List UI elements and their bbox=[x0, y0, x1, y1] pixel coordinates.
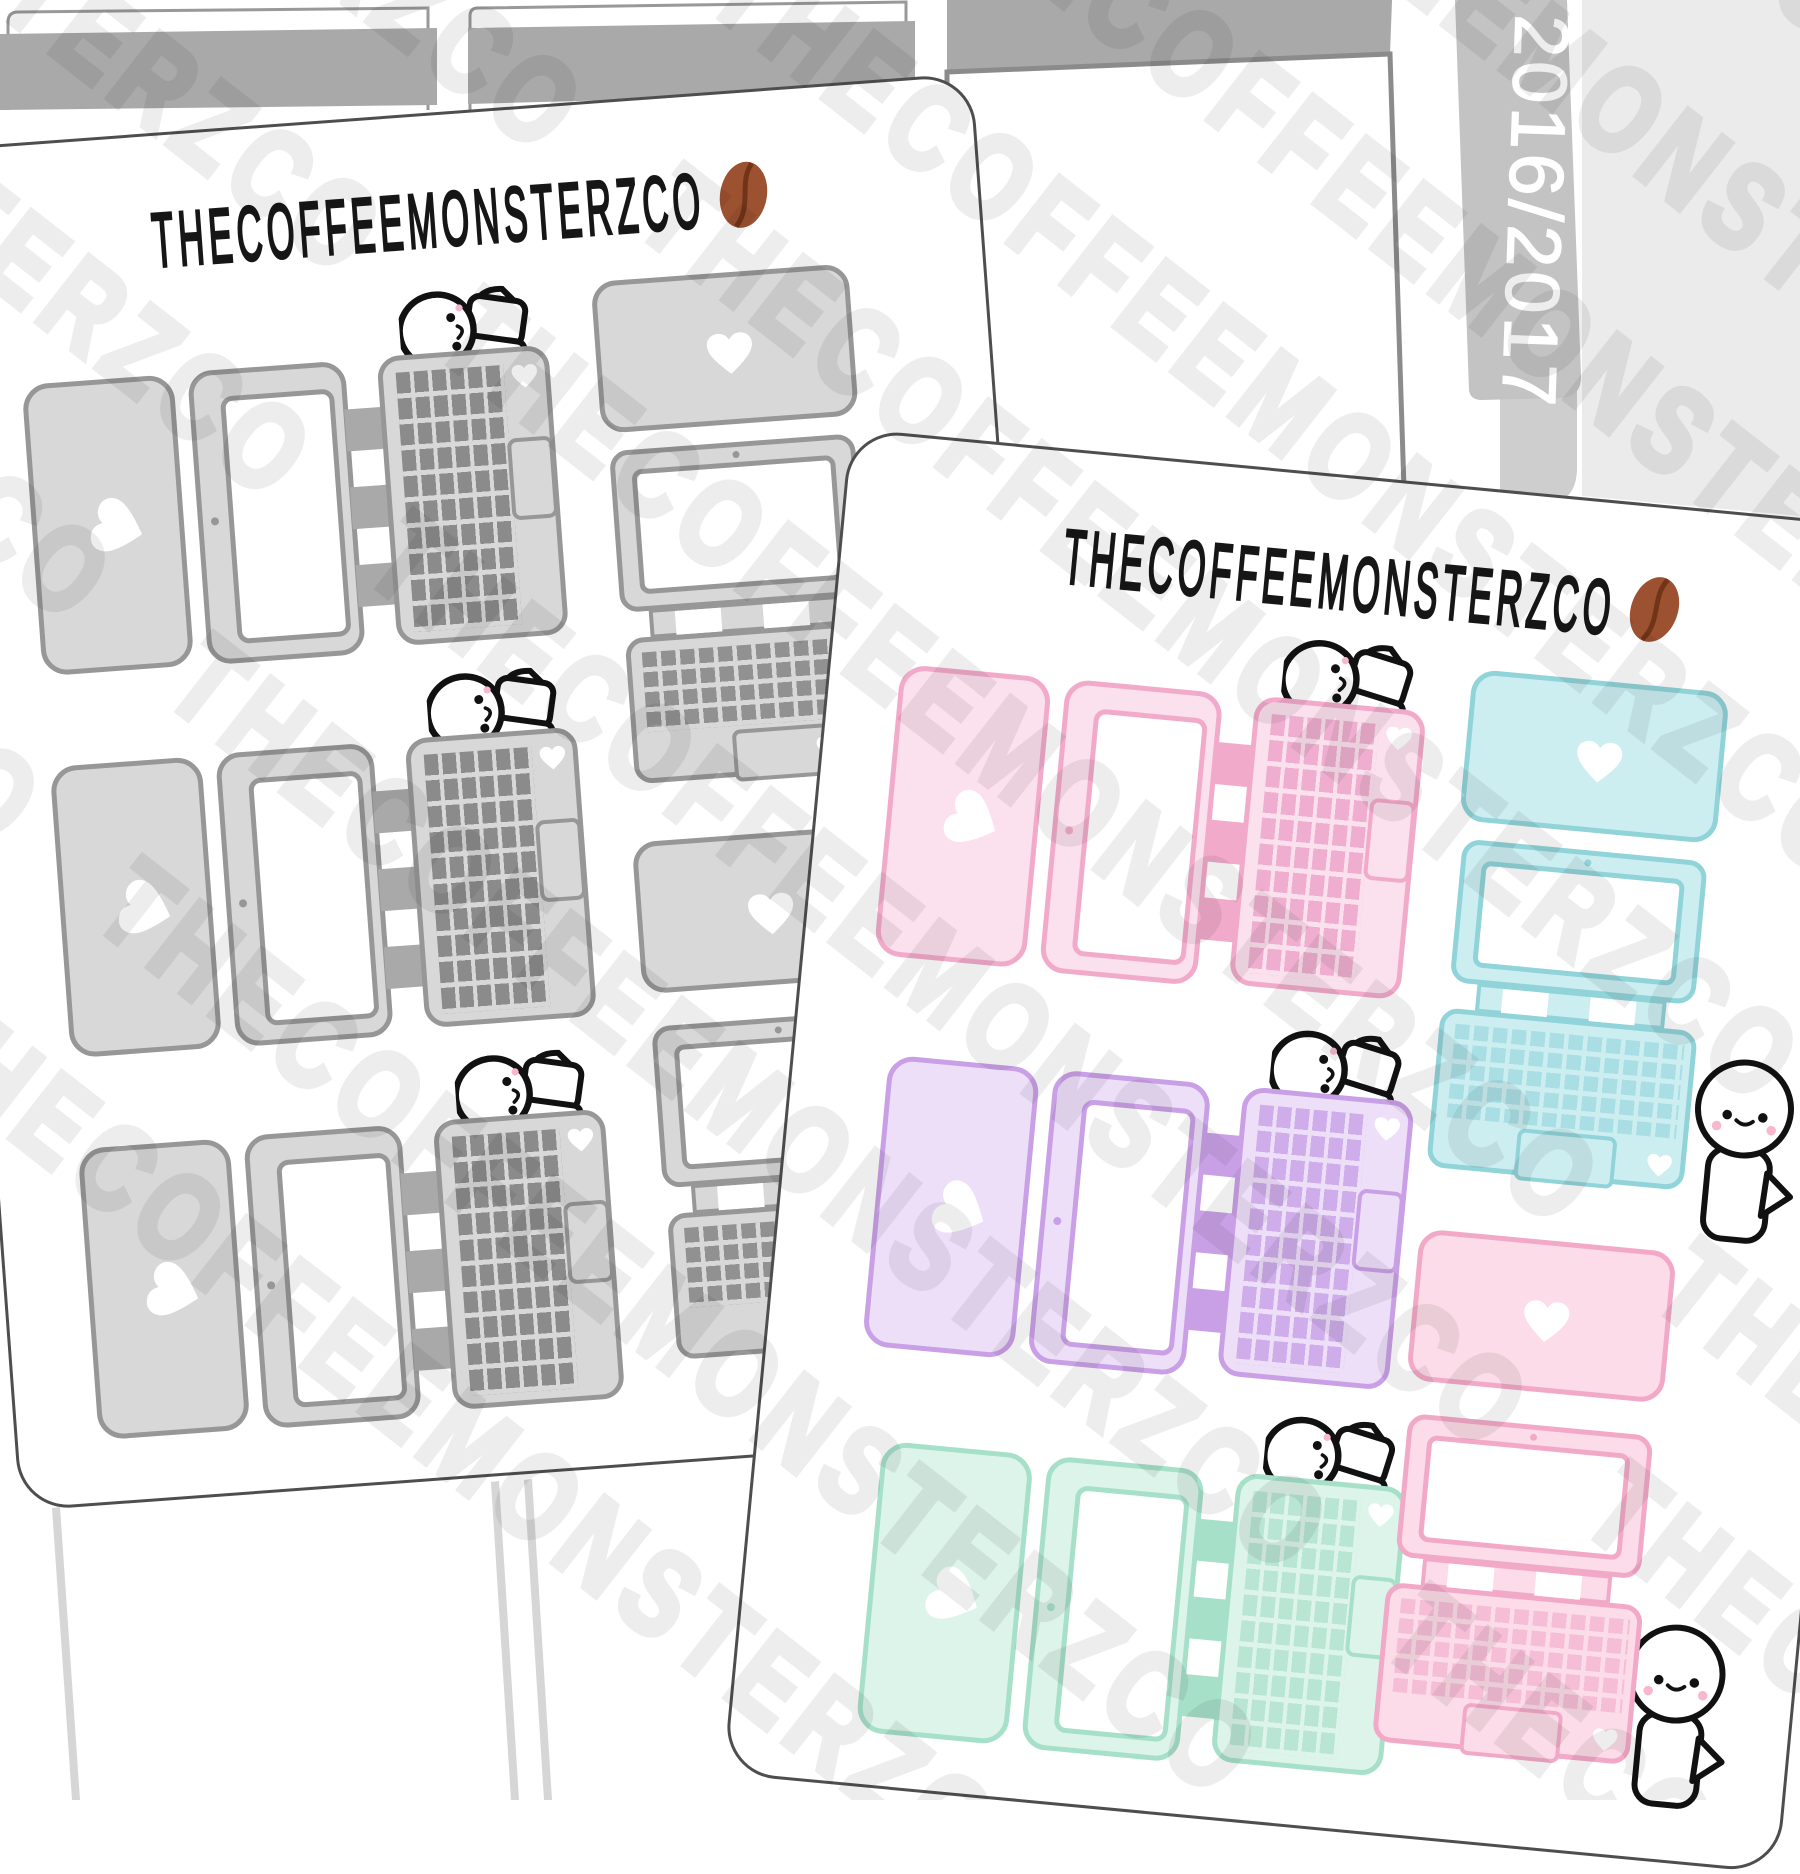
svg-text:2016/2017: 2016/2017 bbox=[1485, 13, 1584, 411]
